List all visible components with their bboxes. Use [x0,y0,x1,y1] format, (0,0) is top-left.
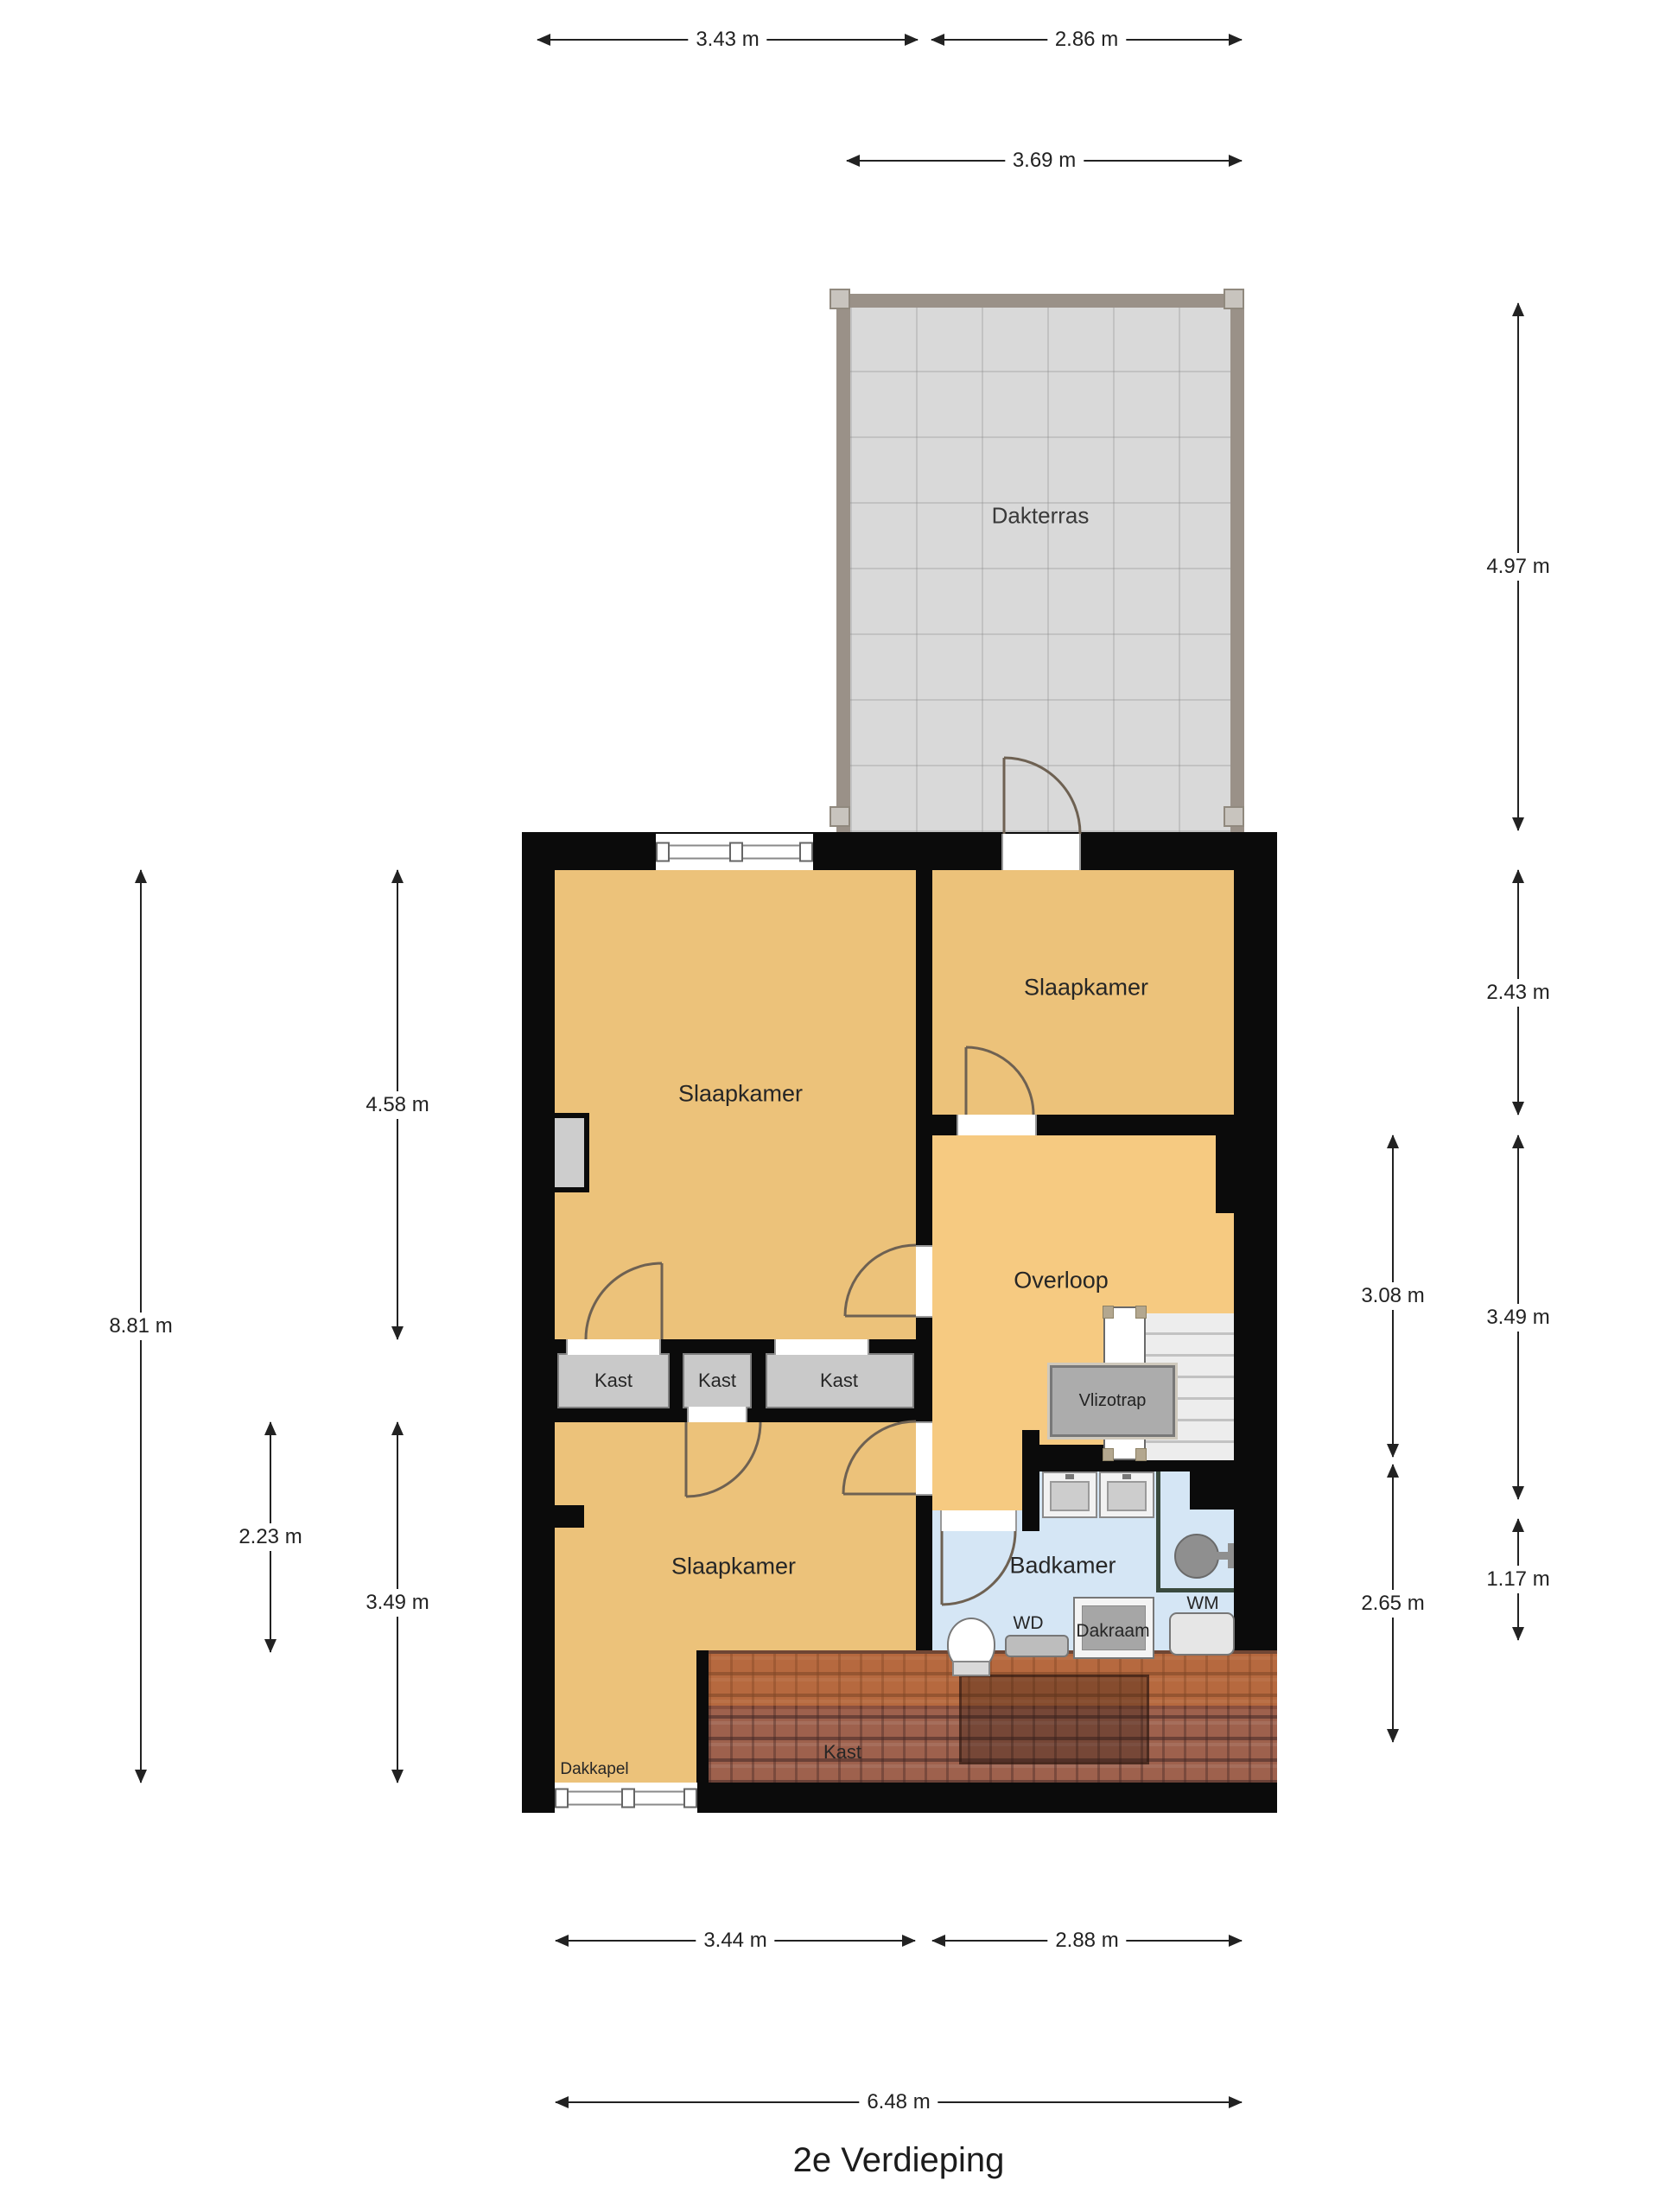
dakraam-label: Dakraam [1076,1621,1149,1642]
doorway-badkamer [940,1510,1017,1531]
sink-left [1042,1471,1097,1518]
kast-2-label: Kast [698,1370,736,1392]
shower-wall-horizontal [1156,1588,1234,1592]
shower-arm-bar [1228,1543,1234,1568]
kast-roof-label: Kast [823,1741,861,1764]
dakterras-label: Dakterras [992,503,1090,530]
dim-left-3: 2.23 m [262,1422,279,1652]
dim-bottom-1-label: 3.44 m [696,1927,774,1955]
railing-post [829,289,850,309]
dim-top-3: 3.69 m [847,152,1242,169]
badkamer-label: Badkamer [1009,1553,1116,1580]
railing-post [1224,289,1244,309]
dim-right-4-label: 3.49 m [1478,1304,1557,1332]
dim-top-1: 3.43 m [537,31,918,48]
dim-top-1-label: 3.43 m [688,26,766,54]
slaapkamer-topright-label: Slaapkamer [1024,975,1148,1001]
overloop-floor-corridor [932,1135,1022,1510]
dakkapel-label: Dakkapel [560,1760,628,1779]
dim-right-2-label: 2.43 m [1478,979,1557,1007]
doorway-overloop-slaapkamer-tl [916,1245,932,1318]
dim-top-2: 2.86 m [931,31,1242,48]
dim-bottom-3: 6.48 m [556,2094,1242,2111]
dim-top-2-label: 2.86 m [1047,26,1126,54]
stair-newel-bottom [1103,1437,1146,1460]
dakterras-floor [850,308,1230,832]
kast-1-opening [566,1339,661,1355]
dim-bottom-2: 2.88 m [932,1932,1242,1949]
terrace-door-opening [1001,834,1081,870]
dim-right-1-label: 4.97 m [1478,553,1557,581]
dim-bottom-1: 3.44 m [556,1932,915,1949]
window-top [656,834,813,870]
dim-right-3: 3.08 m [1384,1135,1402,1457]
overloop-label: Overloop [1014,1268,1109,1294]
wall-niche [555,1118,584,1187]
dim-left-1: 8.81 m [132,870,149,1783]
dim-left-1-label: 8.81 m [101,1313,180,1340]
shower-head-icon [1174,1534,1219,1579]
vlizotrap-hatch: Vlizotrap [1050,1365,1175,1437]
sink-right [1099,1471,1154,1518]
dim-right-5-label: 2.65 m [1353,1590,1432,1618]
dim-top-3-label: 3.69 m [1005,147,1084,175]
kast-1-label: Kast [594,1370,632,1392]
wd-appliance [1005,1635,1069,1657]
dim-bottom-2-label: 2.88 m [1047,1927,1126,1955]
slaapkamer-bottom-label: Slaapkamer [671,1554,796,1580]
railing-post [829,806,850,827]
page-title: 2e Verdieping [793,2141,1005,2180]
dim-right-1: 4.97 m [1510,303,1527,830]
dim-left-4-label: 3.49 m [358,1589,436,1617]
dim-left-4: 3.49 m [389,1422,406,1783]
slaapkamer-topleft-label: Slaapkamer [678,1081,803,1108]
stair-newel-top [1103,1306,1146,1365]
doorway-slaapkamer-tr [957,1115,1037,1135]
dim-left-2: 4.58 m [389,870,406,1339]
wm-appliance [1169,1612,1235,1656]
kast-3-opening [774,1339,869,1355]
dim-left-2-label: 4.58 m [358,1091,436,1119]
railing-post [1224,806,1244,827]
vlizotrap-label: Vlizotrap [1079,1391,1147,1411]
kast-3-label: Kast [820,1370,858,1392]
wall-pier-left [555,1505,584,1528]
floorplan-canvas: Vlizotrap Dakterras Slaapkamer Slaapkame… [0,0,1659,2212]
dim-right-4: 3.49 m [1510,1135,1527,1499]
toilet-cistern [952,1661,990,1676]
dim-right-3-label: 3.08 m [1353,1282,1432,1310]
window-dakkapel [555,1783,697,1813]
dakterras-railing [836,294,1244,832]
wm-label: WM [1186,1593,1218,1614]
dim-bottom-3-label: 6.48 m [859,2088,938,2116]
doorway-overloop-slaapkamer-bottom [916,1421,932,1496]
shower-wall-vertical [1156,1471,1160,1592]
wd-label: WD [1014,1613,1044,1634]
dim-right-2: 2.43 m [1510,870,1527,1115]
dakraam-roof-well [959,1675,1149,1764]
dim-right-5: 2.65 m [1384,1465,1402,1742]
dim-right-6: 1.17 m [1510,1519,1527,1640]
dim-left-3-label: 2.23 m [231,1523,309,1551]
kast-2-opening [687,1407,747,1422]
wall-hall-pier [1022,1430,1039,1531]
wall-pier-right [1216,1135,1234,1213]
dim-right-6-label: 1.17 m [1478,1566,1557,1593]
